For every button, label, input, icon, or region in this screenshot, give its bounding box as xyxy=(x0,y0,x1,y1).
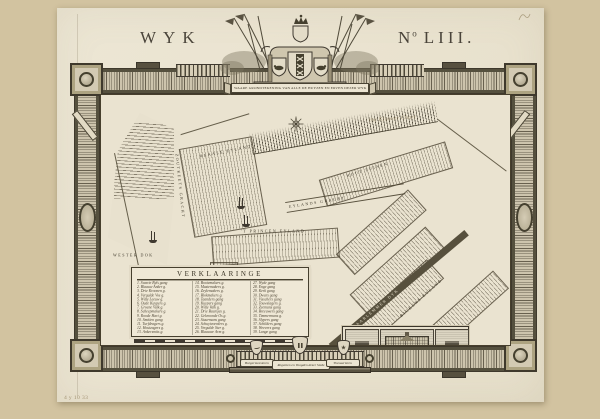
legend-columns: 1. Swarte Byls gang2. Blaauw Anker g.3. … xyxy=(135,281,305,335)
upper-shield xyxy=(293,26,308,42)
ribbon-fold xyxy=(369,81,376,94)
frame-side-medallion xyxy=(516,203,533,232)
drying-frames-hatch xyxy=(114,123,173,200)
legend-panel: VERKLAARINGE 1. Swarte Byls gang2. Blaau… xyxy=(131,267,309,337)
frame-corner-medallion xyxy=(70,339,103,372)
sailing-ship-icon xyxy=(149,231,158,243)
district-title-right: NoLIII. xyxy=(398,28,475,48)
crown-icon xyxy=(294,17,308,24)
frame-corner-medallion xyxy=(70,63,103,96)
legend-rule xyxy=(137,279,303,280)
palace-facade xyxy=(385,336,429,346)
scanned-map-sheet: REAALE EYLAND ZOUTKEETS GRACHT HOUT TUIN… xyxy=(0,0,600,419)
frame-step-ornament xyxy=(136,62,160,69)
legend-entry: 13. Ankersmits g. xyxy=(137,330,190,334)
ribbon-fold xyxy=(224,81,231,94)
building-view-stadhuys: Het Stadhuys xyxy=(380,329,433,346)
frame-step-ornament xyxy=(442,371,466,378)
frame-corner-medallion xyxy=(504,63,537,96)
district-title-left: WYK xyxy=(140,28,202,48)
legend-column: 27. Wyde gang28. Enge gang29. Kerk gang3… xyxy=(250,281,305,335)
compass-rose-icon xyxy=(288,116,304,132)
frame-step-ornament xyxy=(442,62,466,69)
star-icon xyxy=(341,345,346,350)
building-view: 't West Indisch Huys xyxy=(435,329,469,346)
title-banner: WAARE GRONDTEKENING VAN ALLE DE HUYZEN E… xyxy=(224,81,376,95)
legend-column: 1. Swarte Byls gang2. Blaauw Anker g.3. … xyxy=(135,281,190,335)
pencil-shelfmark: 4 y 10 33 xyxy=(64,389,103,407)
pencil-mark xyxy=(517,11,531,23)
figures-icon xyxy=(297,342,304,348)
legend-column: 14. Bootemakers g.15. Mastemakers g.16. … xyxy=(192,281,247,335)
building-view: 't Wester Hek xyxy=(345,329,379,346)
legend-entry: 26. Blaauwe Arm g. xyxy=(195,330,247,334)
handwritten-note: the Kloover Chart xyxy=(368,106,445,129)
building-views-inset: 't Wester Hek Het Stadhuys 't West Indis… xyxy=(342,326,469,346)
name-ribbon: Regenten en Voogden dezer Stede xyxy=(272,360,330,370)
map-field: REAALE EYLAND ZOUTKEETS GRACHT HOUT TUIN… xyxy=(100,94,511,346)
island-label-princen-eyland: 'T PRINCEN EYLAND xyxy=(241,223,369,241)
name-ribbon: Thesaurieren xyxy=(326,359,360,367)
legend-entry: 39. Lange gang xyxy=(253,330,305,334)
scroll-volute xyxy=(226,354,235,363)
banner-text: WAARE GRONDTEKENING VAN ALLE DE HUYZEN E… xyxy=(234,86,366,90)
scale-bar xyxy=(134,339,300,343)
legend-title: VERKLAARINGE xyxy=(135,270,305,279)
bird-icon xyxy=(253,346,259,350)
scroll-volute xyxy=(365,354,374,363)
dock-label-westerdok: WESTER DOK xyxy=(113,247,194,265)
sailing-ship-icon xyxy=(237,197,246,209)
name-ribbon: Burgermeesteren xyxy=(240,359,274,367)
frame-step-ornament xyxy=(136,371,160,378)
frame-side-medallion xyxy=(79,203,96,232)
